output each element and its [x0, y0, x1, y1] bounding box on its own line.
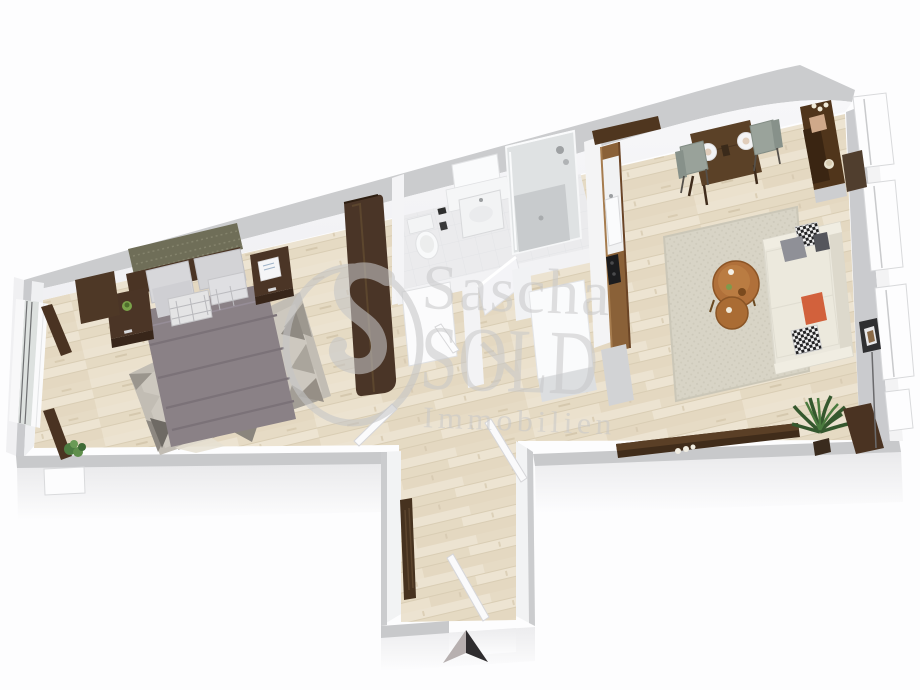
svg-text:SOLD: SOLD	[418, 306, 600, 415]
